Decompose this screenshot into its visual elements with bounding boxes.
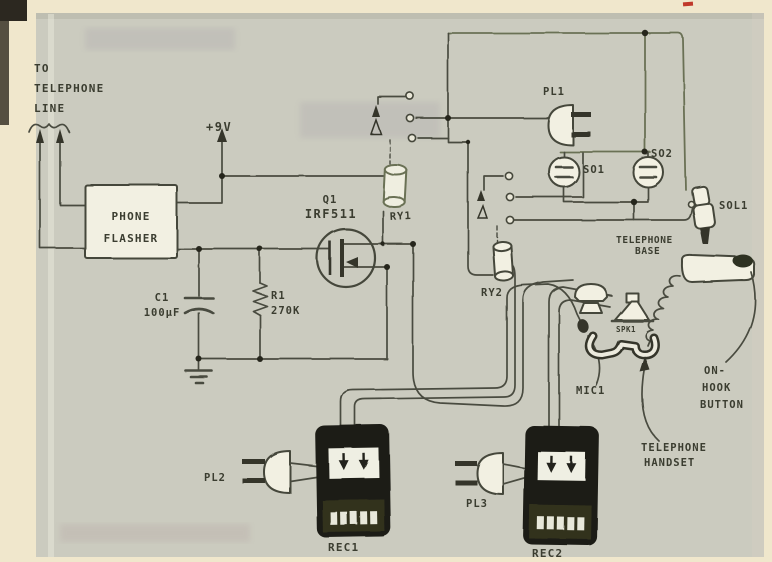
label-so2: SO2	[651, 148, 673, 160]
label-c1-value: 100μF	[144, 307, 181, 319]
hook-button	[733, 255, 753, 268]
label-q1-part: IRF511	[305, 207, 357, 221]
socket-so1	[549, 157, 579, 187]
label-on-hook-button: ON-	[704, 365, 726, 377]
label-to-telephone-line: TELEPHONE	[34, 82, 104, 95]
label-to-telephone-line: LINE	[34, 102, 65, 115]
label-telephone-handset: HANDSET	[644, 457, 695, 469]
panel-top-shade	[36, 13, 764, 19]
label-telephone-handset: TELEPHONE	[641, 442, 707, 454]
label-r1-value: 270K	[271, 305, 300, 317]
label-on-hook-button: HOOK	[702, 382, 731, 394]
scan-corner-dark	[0, 0, 27, 21]
schematic-canvas: TO TELEPHONE LINE +9V PHONE FLASHER Q1 I…	[0, 0, 772, 562]
socket-so2	[633, 157, 663, 187]
label-ry1: RY1	[390, 210, 413, 223]
ghost-text-smudge	[300, 102, 440, 138]
label-rec1: REC1	[328, 541, 359, 554]
label-pl1: PL1	[543, 86, 565, 98]
label-phone-flasher: PHONE	[111, 210, 150, 223]
label-ry2: RY2	[481, 287, 503, 299]
ghost-text-smudge	[60, 524, 250, 542]
label-so1: SO1	[583, 164, 605, 176]
label-mic1: MIC1	[576, 385, 605, 397]
label-to-telephone-line: TO	[34, 62, 50, 75]
relay-coil-ry1	[383, 164, 407, 207]
relay-coil-ry2	[493, 241, 514, 281]
label-c1: C1	[155, 292, 170, 304]
ghost-text-smudge	[85, 28, 235, 50]
scanned-page: { "figure": { "type": "hand-drawn schema…	[0, 0, 772, 562]
label-telephone-base: TELEPHONE	[616, 235, 673, 246]
label-phone-flasher: FLASHER	[104, 232, 159, 245]
red-tick	[683, 2, 693, 7]
panel-gap-highlight	[48, 14, 54, 557]
paper-panel	[36, 13, 764, 557]
module-rec1	[315, 424, 391, 537]
label-r1: R1	[271, 290, 286, 302]
label-sol1: SOL1	[719, 200, 748, 212]
label-pl2: PL2	[204, 472, 226, 484]
label-spk1: SPK1	[616, 325, 636, 334]
label-on-hook-button: BUTTON	[700, 399, 744, 411]
label-supply-9v: +9V	[206, 120, 232, 134]
label-pl3: PL3	[466, 498, 488, 510]
label-rec2: REC2	[532, 547, 563, 560]
label-q1: Q1	[323, 194, 338, 206]
label-telephone-base: BASE	[635, 246, 660, 257]
module-rec2	[523, 425, 599, 545]
